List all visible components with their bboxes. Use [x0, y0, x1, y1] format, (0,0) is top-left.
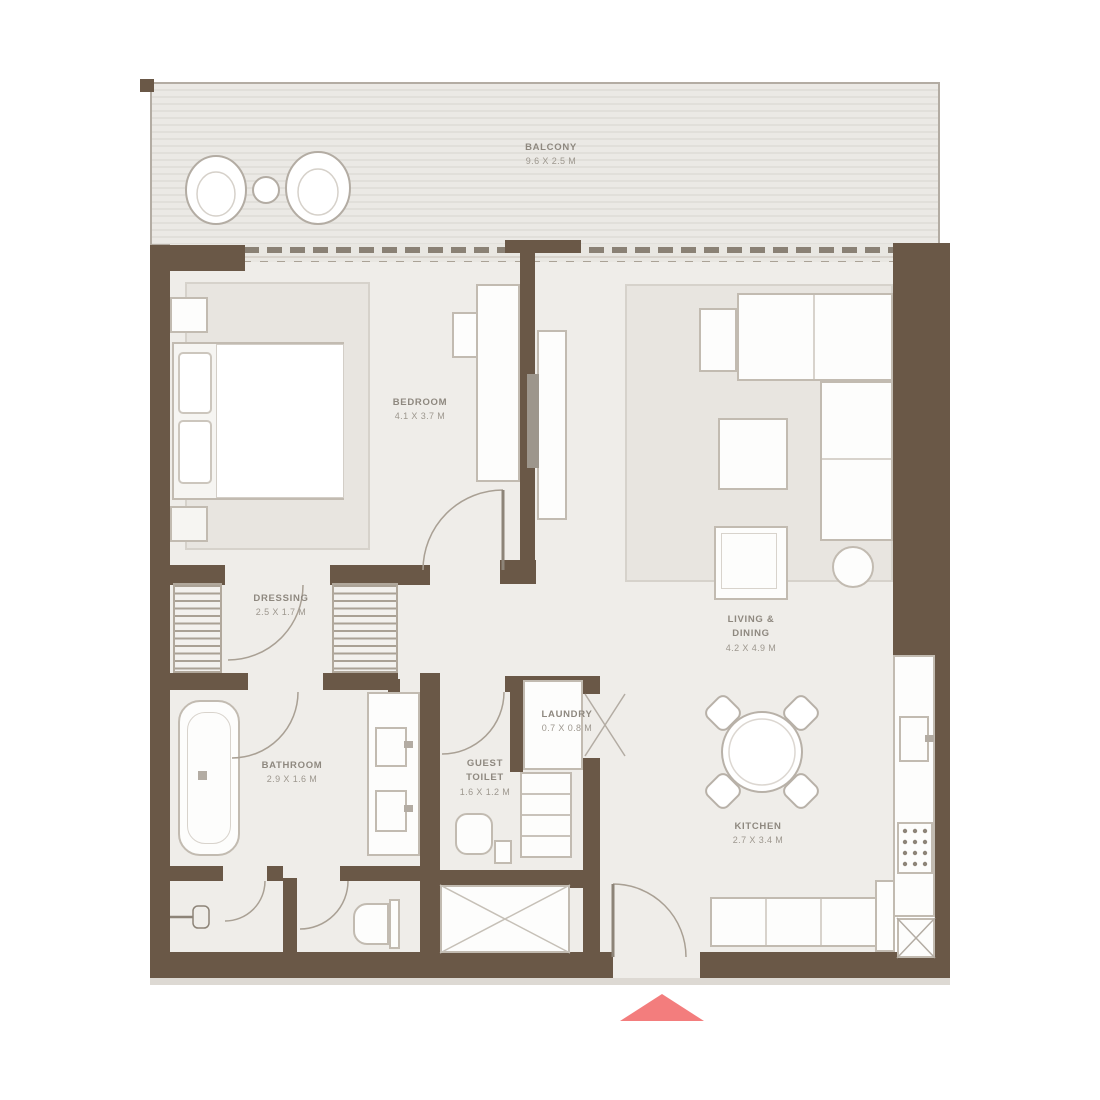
guest-toilet-dims: 1.6 x 1.2 M — [460, 786, 510, 800]
nightstand — [170, 506, 208, 542]
dressing-dims: 2.5 x 1.7 M — [253, 606, 308, 620]
bathroom-dims: 2.9 x 1.6 M — [262, 773, 323, 787]
duvet — [216, 344, 344, 498]
service-shaft — [440, 885, 570, 953]
bathroom-label: BATHROOM 2.9 x 1.6 M — [262, 759, 323, 787]
laundry-name: LAUNDRY — [542, 708, 593, 722]
wall — [267, 866, 283, 881]
kitchen-label: KITCHEN 2.7 x 3.4 M — [733, 820, 783, 848]
living-dining-dims: 4.2 x 4.9 M — [726, 642, 776, 656]
guest-toilet-name-1: GUEST — [460, 757, 510, 771]
wall — [500, 560, 536, 584]
wall — [583, 676, 600, 694]
faucet-icon — [404, 741, 413, 748]
wall — [505, 240, 581, 253]
wall — [340, 866, 420, 881]
faucet-icon — [404, 805, 413, 812]
toilet — [353, 903, 389, 945]
pillow — [178, 352, 212, 414]
toilet-tank — [389, 899, 400, 949]
entrance-arrow-icon — [620, 994, 704, 1021]
tv — [527, 374, 539, 468]
round-side-table — [832, 546, 874, 588]
cabinet-seam — [820, 899, 822, 945]
wall — [170, 565, 225, 585]
armchair — [714, 526, 788, 600]
balcony-label: BALCONY 9.6 x 2.5 M — [525, 141, 577, 169]
dresser — [476, 284, 520, 482]
tv-console — [537, 330, 567, 520]
kitchen-dims: 2.7 x 3.4 M — [733, 834, 783, 848]
desk-stool — [452, 312, 478, 358]
guest-toilet-label: GUEST TOILET 1.6 x 1.2 M — [460, 757, 510, 799]
base-shadow-line — [150, 978, 950, 985]
wall — [893, 243, 950, 663]
laundry-label: LAUNDRY 0.7 x 0.8 M — [542, 708, 593, 736]
wall — [140, 79, 154, 92]
balcony-name: BALCONY — [525, 141, 577, 155]
wall — [323, 673, 398, 690]
nightstand — [170, 297, 208, 333]
pillow — [178, 420, 212, 484]
living-dining-name-2: DINING — [726, 627, 776, 641]
laundry-dims: 0.7 x 0.8 M — [542, 722, 593, 736]
coffee-table — [718, 418, 788, 490]
balcony-dims: 9.6 x 2.5 M — [525, 155, 577, 169]
bedroom-dims: 4.1 x 3.7 M — [393, 410, 448, 424]
bathtub-inner — [187, 712, 231, 844]
wall — [330, 565, 430, 585]
sliding-door-track — [175, 256, 895, 258]
tall-cabinet — [875, 880, 895, 952]
wall — [510, 676, 523, 772]
entrance-threshold — [610, 952, 703, 978]
living-dining-name-1: LIVING & — [726, 613, 776, 627]
wall — [165, 866, 223, 881]
hob — [897, 822, 933, 874]
tub-faucet-icon — [198, 771, 207, 780]
wall — [583, 758, 600, 955]
wardrobe — [332, 583, 398, 673]
kitchen-counter — [893, 655, 935, 917]
sink — [375, 790, 407, 832]
sink — [375, 727, 407, 767]
bathroom-name: BATHROOM — [262, 759, 323, 773]
armchair-cushion — [721, 533, 777, 589]
small-sink — [494, 840, 512, 864]
wall — [283, 878, 297, 956]
bedroom-label: BEDROOM 4.1 x 3.7 M — [393, 396, 448, 424]
faucet-icon — [925, 735, 934, 742]
kitchen-cabinets — [710, 897, 877, 947]
wall — [935, 663, 950, 955]
sofa-chaise — [820, 381, 893, 541]
living-dining-label: LIVING & DINING 4.2 x 4.9 M — [726, 613, 776, 655]
sofa-seam — [822, 458, 891, 460]
linen-shelves — [520, 772, 572, 858]
appliance — [897, 918, 935, 958]
toilet — [455, 813, 493, 855]
side-table — [699, 308, 737, 372]
kitchen-name: KITCHEN — [733, 820, 783, 834]
cabinet-seam — [765, 899, 767, 945]
wall — [420, 673, 440, 955]
wall — [150, 952, 613, 978]
floor-plan: BALCONY 9.6 x 2.5 M BEDROOM 4.1 x 3.7 M … — [0, 0, 1100, 1100]
dressing-label: DRESSING 2.5 x 1.7 M — [253, 592, 308, 620]
sofa — [737, 293, 893, 381]
sofa-seam — [813, 295, 815, 379]
wardrobe — [173, 583, 222, 673]
guest-toilet-name-2: TOILET — [460, 771, 510, 785]
wall — [165, 673, 248, 690]
bedroom-name: BEDROOM — [393, 396, 448, 410]
dressing-name: DRESSING — [253, 592, 308, 606]
